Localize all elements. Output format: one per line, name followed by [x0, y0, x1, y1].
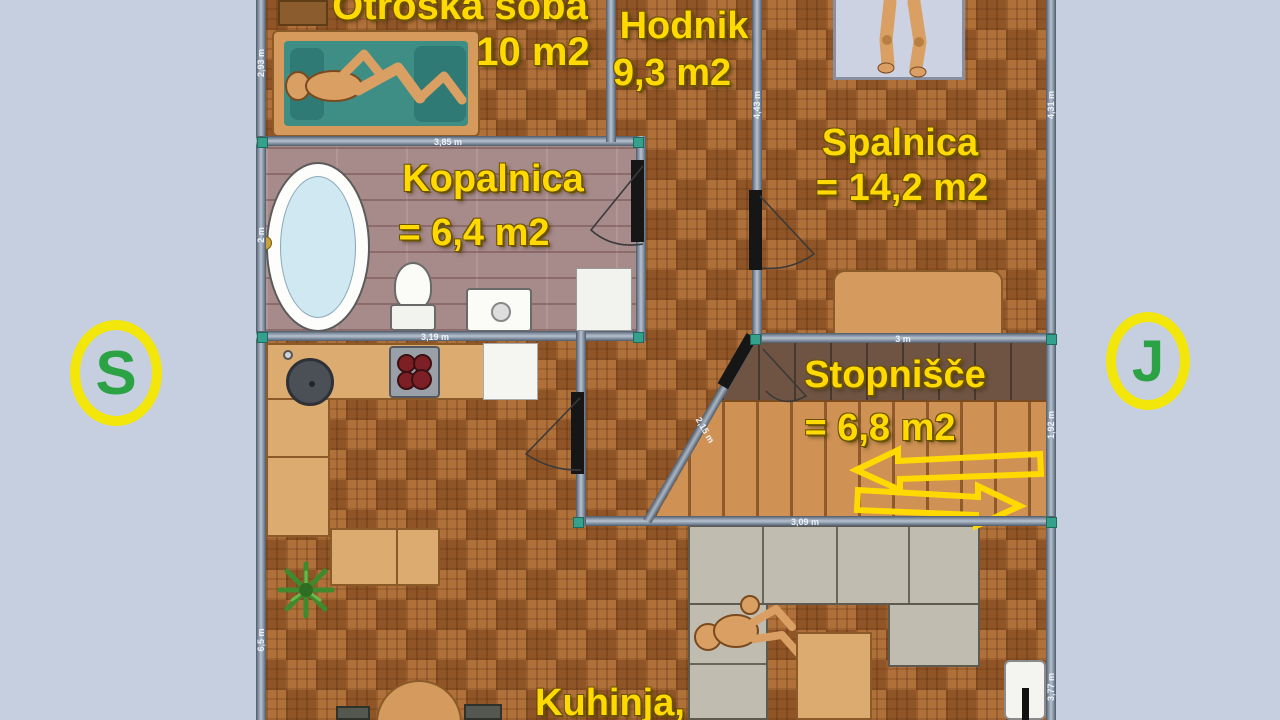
dim-bath-bottom: 3,19 m	[412, 332, 458, 342]
door-kitchen	[571, 392, 584, 474]
compass-west-letter: S	[95, 338, 136, 409]
dining-chair-right	[464, 704, 502, 720]
mannequin-sitting-icon	[692, 583, 807, 668]
corner-marker	[257, 332, 268, 343]
compass-east: J	[1106, 312, 1190, 410]
sink-tap-icon	[283, 350, 293, 360]
kitchen-island	[330, 528, 440, 586]
dim-right-top: 4,31 m	[1046, 82, 1056, 128]
arrow-up-icon	[856, 450, 1041, 490]
dim-stairs-top: 3 m	[880, 334, 926, 344]
child-bed	[272, 30, 480, 137]
shower	[576, 268, 632, 331]
mannequin-standing-icon	[862, 0, 942, 78]
compass-east-letter: J	[1132, 328, 1164, 395]
toilet-tank	[390, 304, 436, 331]
dim-stairs-bottom: 3,09 m	[782, 517, 828, 527]
kitchen-counter-left	[266, 398, 330, 537]
coffee-table	[796, 632, 872, 720]
dim-left-top: 2,93 m	[256, 40, 266, 86]
mannequin-lying-icon	[282, 42, 472, 127]
tv-unit	[1004, 660, 1046, 720]
sofa-chaise	[888, 603, 980, 667]
corner-marker	[633, 332, 644, 343]
dim-stairs-right: 1,92 m	[1046, 402, 1056, 448]
bathtub	[266, 162, 370, 332]
counter-divider	[268, 456, 328, 458]
toilet	[394, 262, 432, 310]
fridge	[483, 343, 538, 400]
label-hodnik-area: 9,3 m2	[594, 52, 750, 95]
dim-bath-top: 3,85 m	[425, 137, 471, 147]
dim-right-bottom: 3,77 m	[1046, 664, 1056, 710]
corner-marker	[1046, 517, 1057, 528]
wall-hall-bedroom	[752, 0, 762, 343]
corner-marker	[1046, 334, 1057, 345]
compass-west: S	[70, 320, 162, 426]
floor-plan: 2,93 m 2 m 6,5 m 3,85 m 3,19 m 4,43 m 4,…	[0, 0, 1280, 720]
label-kuhinja-name: Kuhinja,	[522, 682, 698, 720]
label-kopalnica-name: Kopalnica	[388, 158, 598, 201]
label-hodnik-name: Hodnik	[606, 5, 762, 48]
label-otroska-name: Otroška soba	[322, 0, 598, 29]
plant-icon	[276, 560, 336, 620]
label-spalnica-area: = 14,2 m2	[794, 167, 1010, 210]
label-stopnisce-name: Stopnišče	[792, 354, 998, 397]
corner-marker	[257, 137, 268, 148]
stove	[389, 346, 440, 398]
double-bed	[833, 270, 1003, 336]
door-bathroom	[631, 160, 644, 242]
wardrobe	[833, 0, 965, 80]
dim-hall-bedroom: 4,43 m	[752, 82, 762, 128]
corner-marker	[573, 517, 584, 528]
corner-marker	[750, 334, 761, 345]
corner-marker	[633, 137, 644, 148]
kitchen-sink	[286, 358, 334, 406]
island-divider	[396, 530, 398, 584]
dining-chair-left	[336, 706, 370, 720]
wall-outer-left	[256, 0, 266, 720]
dim-left-bath: 2 m	[256, 212, 266, 258]
label-otroska-area: 10 m2	[466, 30, 600, 75]
door-bedroom	[749, 190, 762, 270]
dim-left-bottom: 6,5 m	[256, 617, 266, 663]
label-kopalnica-area: = 6,4 m2	[378, 212, 570, 255]
label-spalnica-name: Spalnica	[800, 122, 1000, 165]
label-stopnisce-area: = 6,8 m2	[788, 407, 972, 450]
dresser	[278, 0, 328, 26]
washing-machine	[466, 288, 532, 332]
